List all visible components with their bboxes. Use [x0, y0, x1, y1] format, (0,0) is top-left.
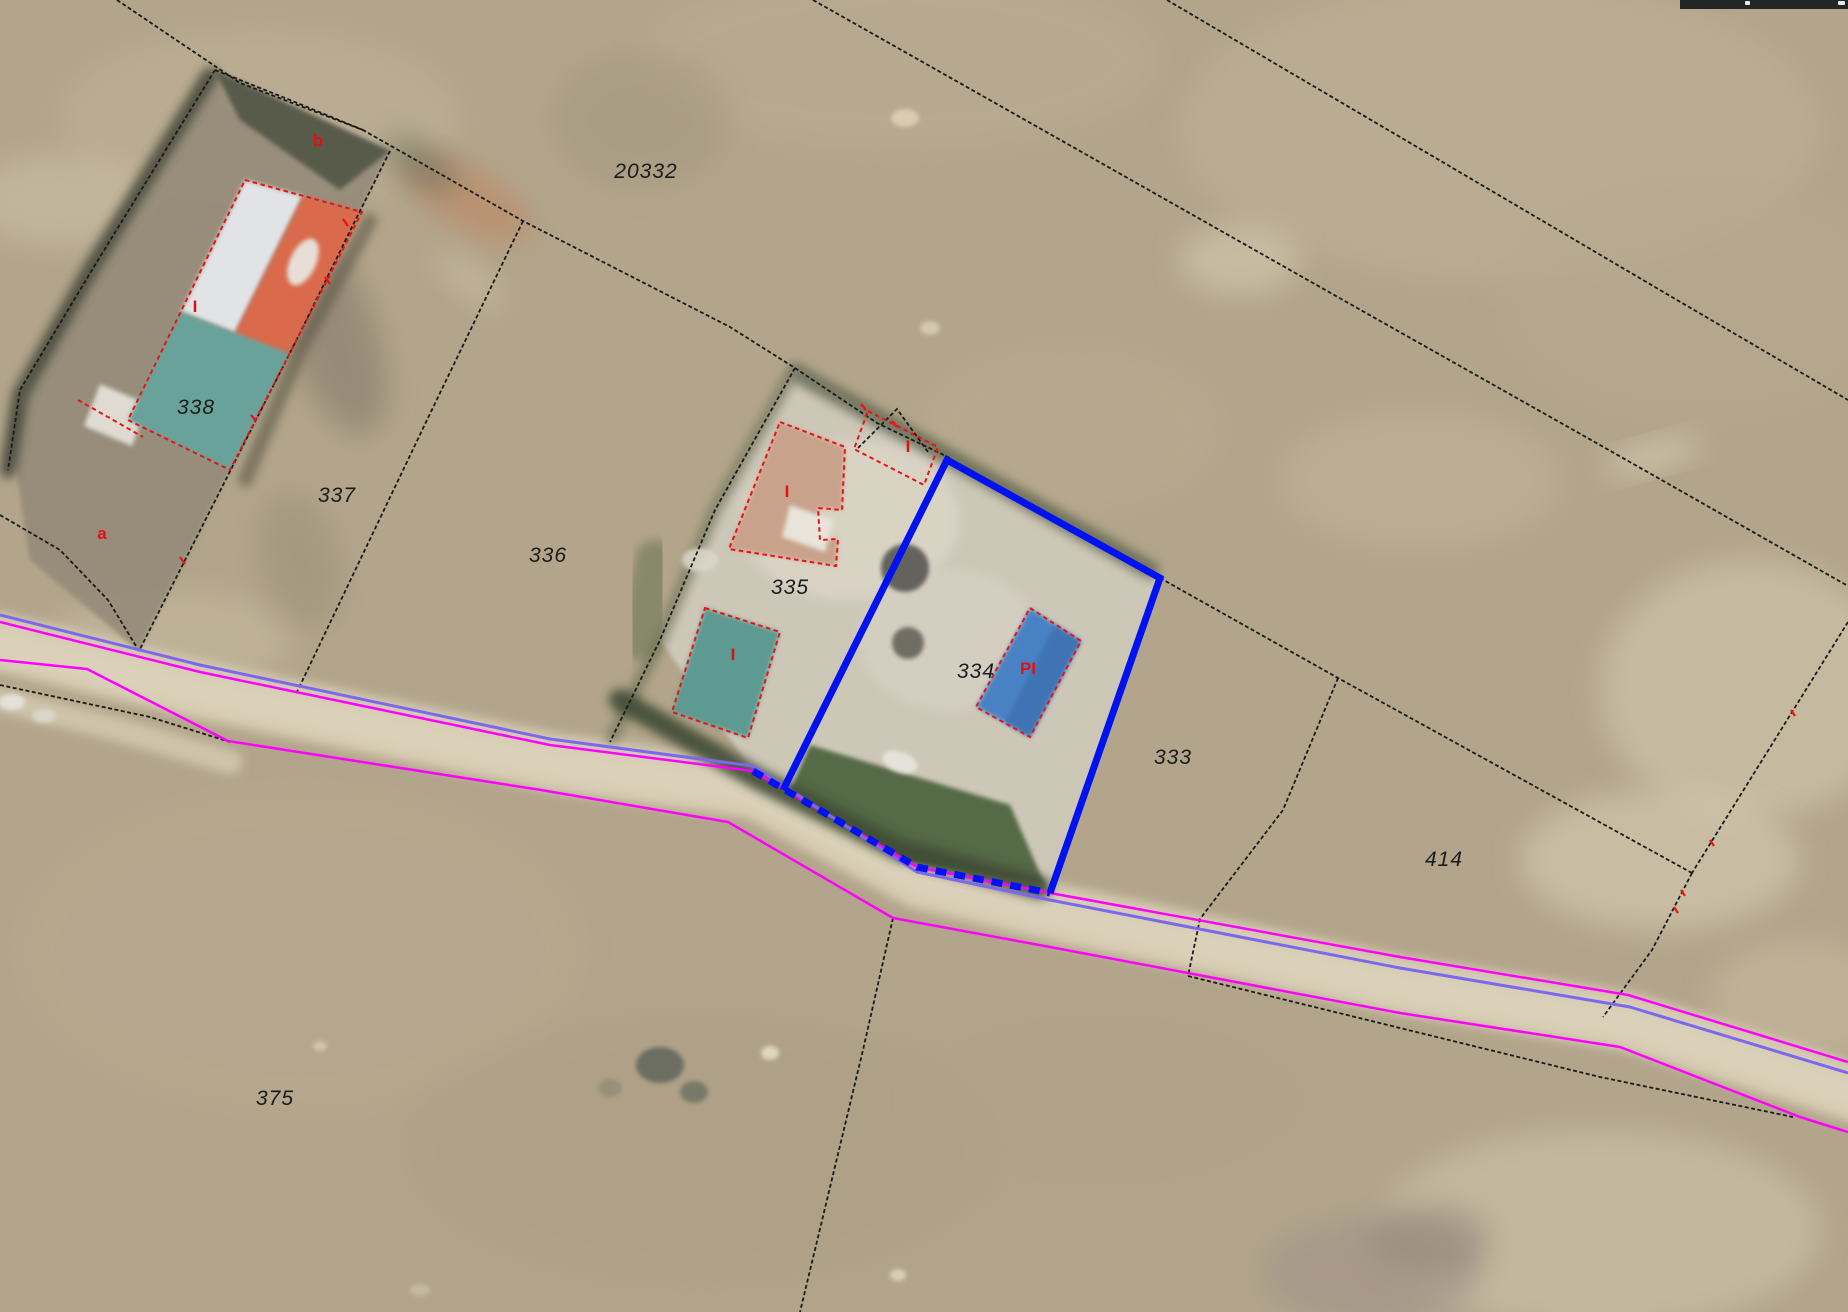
- parcel-label-20332: 20332: [613, 160, 677, 183]
- parcel-label-334: 334: [957, 660, 995, 683]
- terrain-spot: [636, 1047, 684, 1083]
- window-edge-speck: [1745, 1, 1750, 5]
- parcel-label-336: 336: [529, 544, 567, 567]
- window-edge-artifact: [1680, 0, 1848, 9]
- terrain-spot: [890, 1269, 906, 1281]
- water-tank: [892, 627, 924, 659]
- subparcel-letter-label: I: [731, 645, 736, 664]
- parcel-label-333: 333: [1154, 746, 1192, 769]
- terrain-spot: [410, 1284, 430, 1296]
- subparcel-letter-label: I: [193, 297, 198, 316]
- parcel-label-414: 414: [1425, 848, 1463, 871]
- subparcel-letter-label: a: [97, 524, 107, 543]
- terrain-spot: [682, 548, 718, 572]
- terrain-spot: [313, 1041, 327, 1051]
- terrain-patch: [1280, 410, 1560, 550]
- pool335-lawn: [640, 560, 655, 640]
- window-edge-speck: [1838, 1, 1845, 5]
- parcel-label-375: 375: [256, 1087, 294, 1110]
- terrain-patch: [1370, 1205, 1490, 1275]
- terrain-spot: [891, 109, 919, 127]
- aerial-cadastral-map: 20332338337336335334333414375baIIIIPI: [0, 0, 1848, 1312]
- parcel-label-337: 337: [318, 484, 356, 507]
- terrain-spot: [920, 321, 940, 335]
- terrain-spot: [32, 709, 56, 723]
- terrain-spot: [761, 1046, 779, 1060]
- map-canvas[interactable]: 20332338337336335334333414375baIIIIPI: [0, 0, 1848, 1312]
- terrain-spot: [598, 1079, 622, 1097]
- terrain-spot: [0, 694, 25, 710]
- subparcel-letter-label: I: [785, 482, 790, 501]
- parcel-label-335: 335: [771, 576, 809, 599]
- terrain-patch: [1180, 225, 1300, 295]
- terrain-patch: [1520, 790, 1800, 930]
- parcel-label-338: 338: [177, 396, 215, 419]
- subparcel-letter-label: I: [906, 437, 911, 456]
- terrain-spot: [680, 1081, 708, 1103]
- subparcel-letter-label: b: [313, 131, 323, 150]
- terrain-patch: [860, 980, 1340, 1220]
- subparcel-letter-label: PI: [1020, 659, 1036, 678]
